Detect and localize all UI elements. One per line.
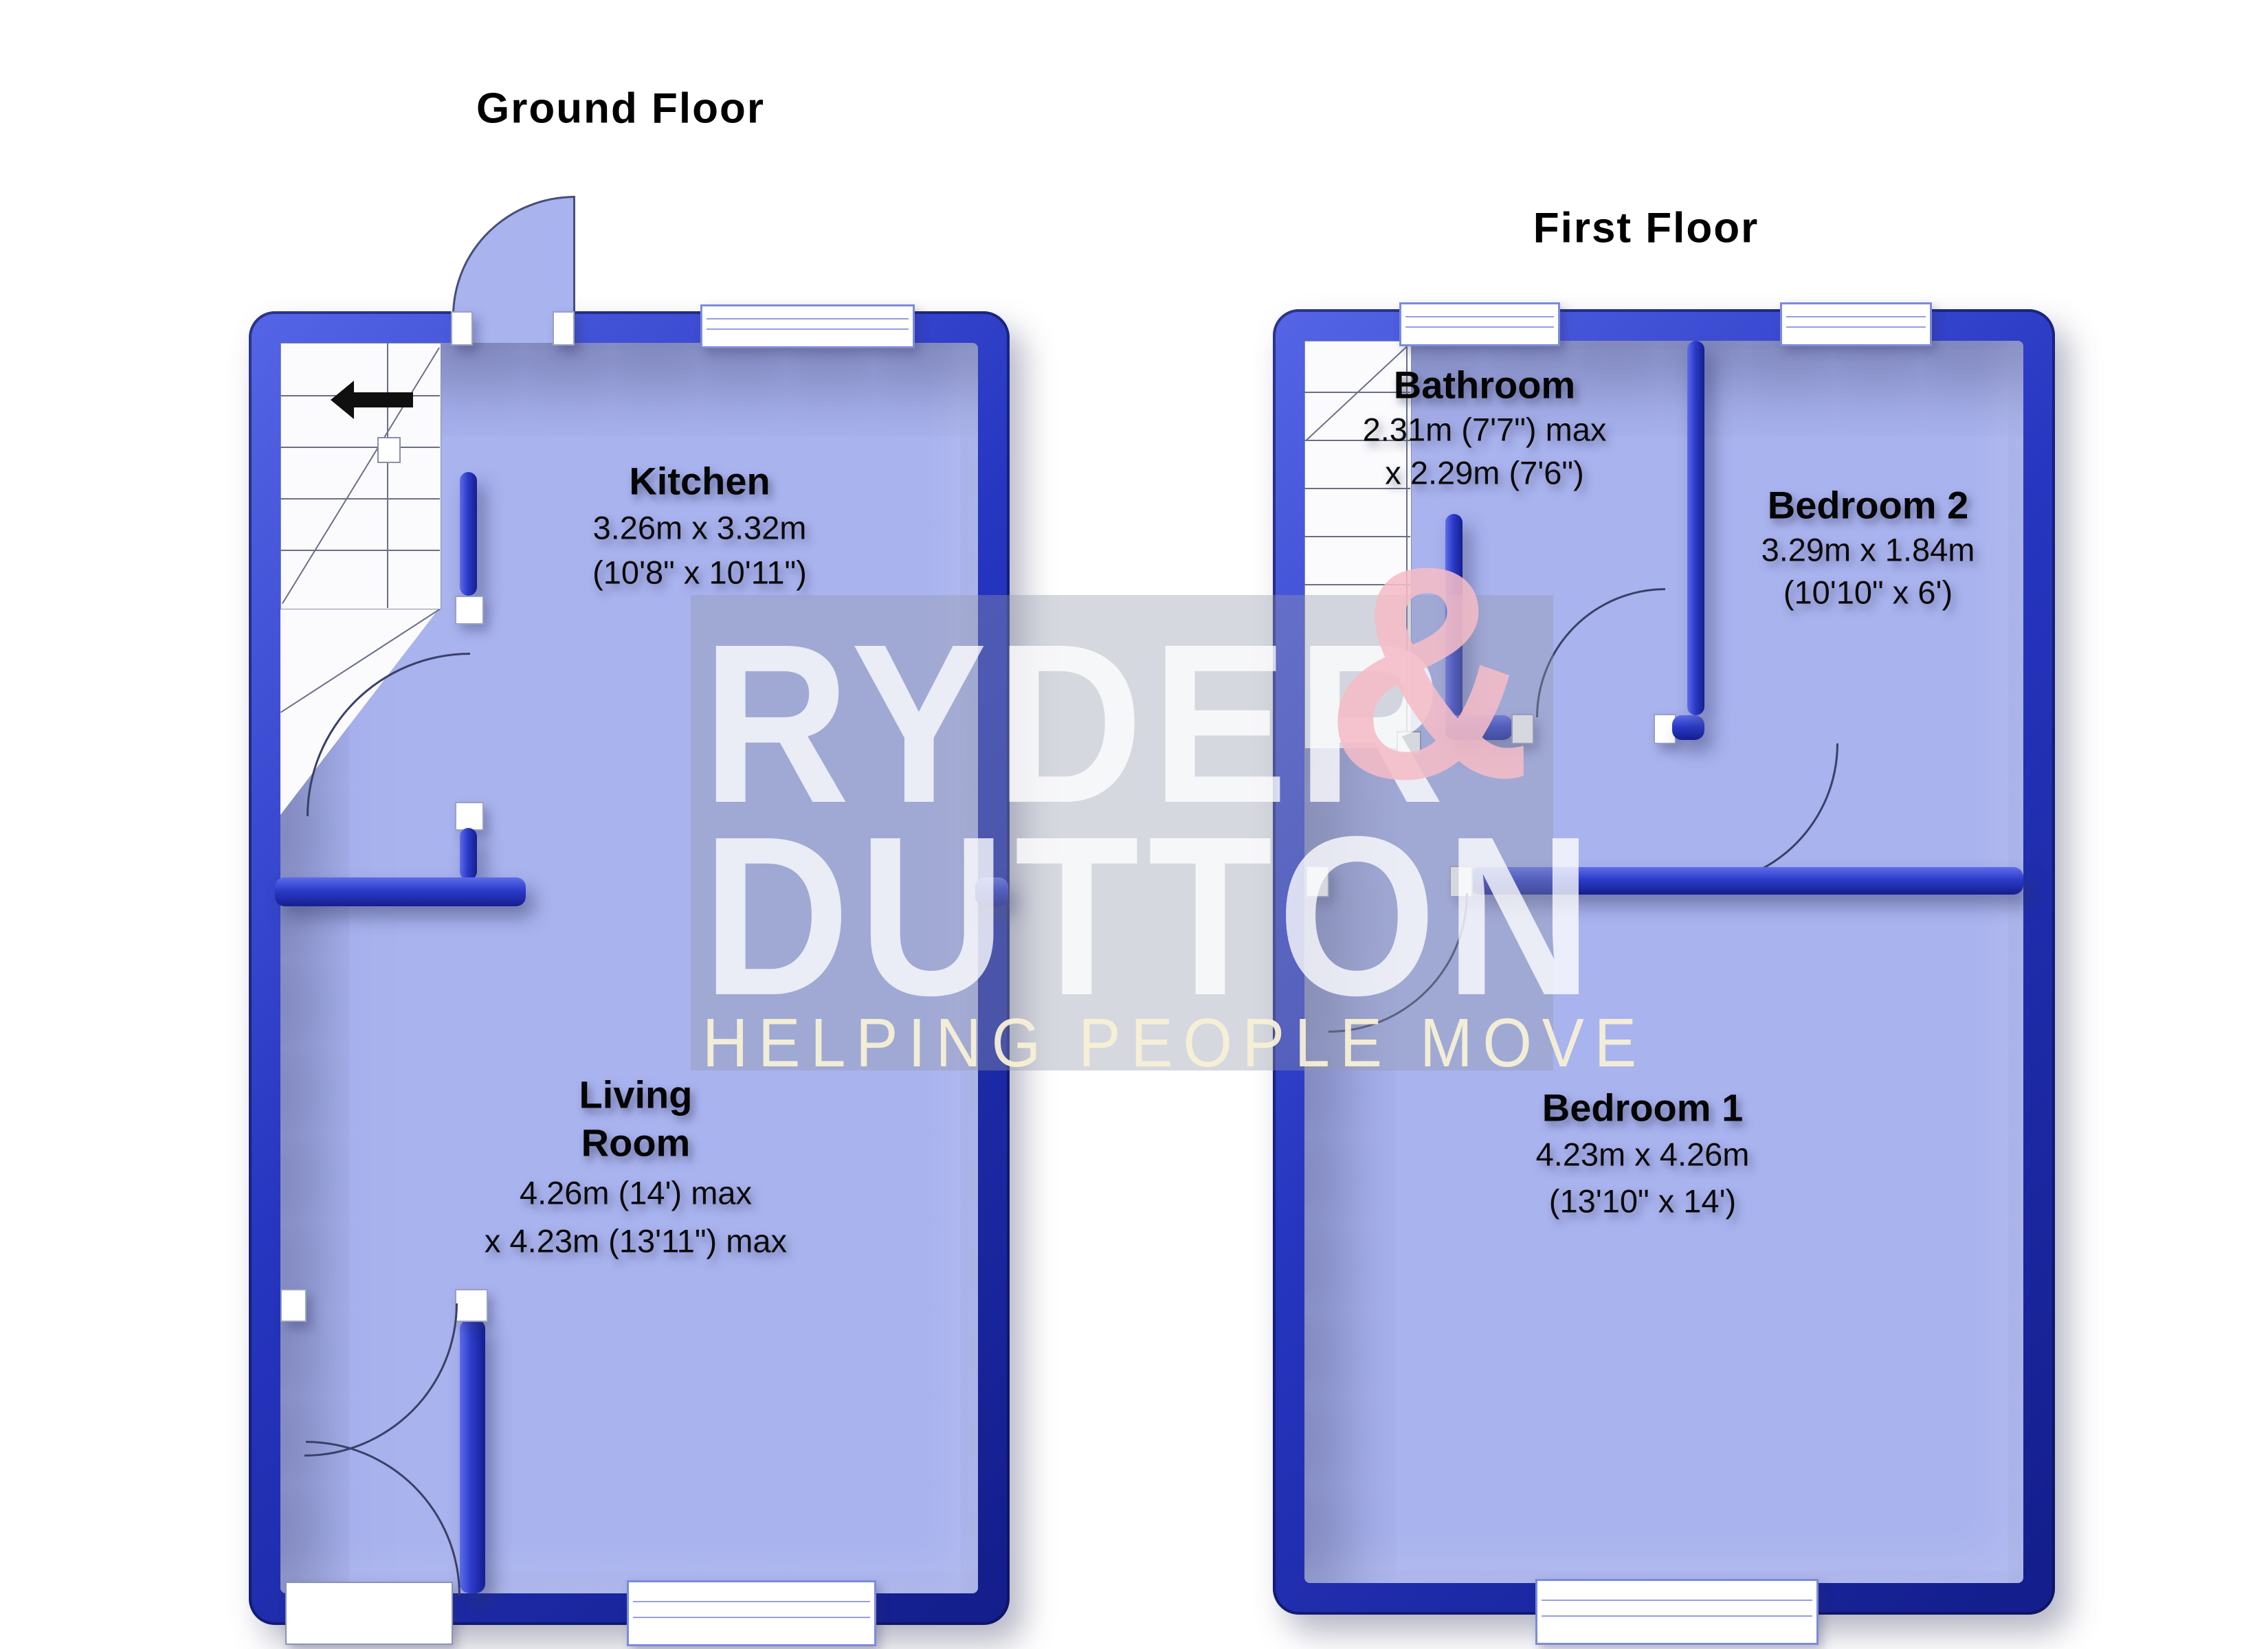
ground-floor-title: Ground Floor (476, 85, 765, 133)
kitchen-window (700, 304, 915, 348)
door-jamb (280, 1289, 307, 1322)
room-label-living-room-line2: Room (581, 1121, 691, 1165)
bedroom2-window (1780, 302, 1932, 346)
bathroom-dimensions-metric: 2.31m (7'7") max (1363, 411, 1607, 449)
bathroom-window (1399, 302, 1560, 346)
living-room-window (627, 1580, 876, 1646)
bedroom2-dimensions-metric: 3.29m x 1.84m (1761, 531, 1975, 569)
door-jamb (553, 311, 575, 346)
living-room-dimensions-imperial: x 4.23m (13'11") max (485, 1222, 787, 1260)
room-label-kitchen: Kitchen (629, 459, 770, 504)
entrance-door-swing (452, 196, 575, 316)
bedroom1-window (1535, 1579, 1819, 1645)
bathroom-dimensions-imperial: x 2.29m (7'6") (1385, 454, 1583, 492)
internal-wall (460, 472, 477, 596)
room-label-bedroom1: Bedroom 1 (1542, 1086, 1744, 1130)
lobby-wall (460, 1319, 485, 1593)
watermark-tagline: HELPING PEOPLE MOVE (702, 1009, 1647, 1077)
stair-tread (280, 550, 440, 551)
living-room-dimensions-metric: 4.26m (14') max (520, 1174, 752, 1212)
door-jamb (455, 1289, 488, 1322)
internal-wall (1687, 341, 1704, 715)
stair-arrow-icon (354, 392, 413, 407)
bedroom2-dimensions-imperial: (10'10" x 6') (1783, 574, 1953, 612)
watermark-brand-dutton: DUTTON (702, 803, 1601, 1029)
stair-railing (387, 343, 388, 608)
room-label-bathroom: Bathroom (1394, 363, 1575, 407)
floorplan-image: Ground Floor Kitchen 3.26m x 3.32m (10'8… (0, 0, 2268, 1649)
front-door-slab (285, 1582, 453, 1645)
door-jamb (451, 311, 473, 346)
watermark-ampersand: & (1325, 522, 1533, 824)
bathroom-wall (1672, 715, 1704, 740)
room-label-bedroom2: Bedroom 2 (1768, 483, 1969, 528)
door-opening (469, 313, 554, 343)
bedroom1-dimensions-metric: 4.23m x 4.26m (1536, 1136, 1750, 1174)
internal-wall (275, 877, 526, 906)
bedroom1-dimensions-imperial: (13'10" x 14') (1549, 1182, 1736, 1220)
internal-wall (460, 828, 477, 880)
kitchen-dimensions-imperial: (10'8" x 10'11") (592, 554, 807, 592)
stair-tread (280, 447, 440, 448)
stair-newel-cap (377, 437, 401, 463)
stair-arrow-head-icon (331, 381, 354, 419)
stair-tread (280, 498, 440, 500)
kitchen-dimensions-metric: 3.26m x 3.32m (593, 509, 807, 547)
first-floor-title: First Floor (1533, 204, 1759, 253)
room-label-living-room-line1: Living (579, 1073, 693, 1117)
door-jamb (455, 596, 484, 625)
